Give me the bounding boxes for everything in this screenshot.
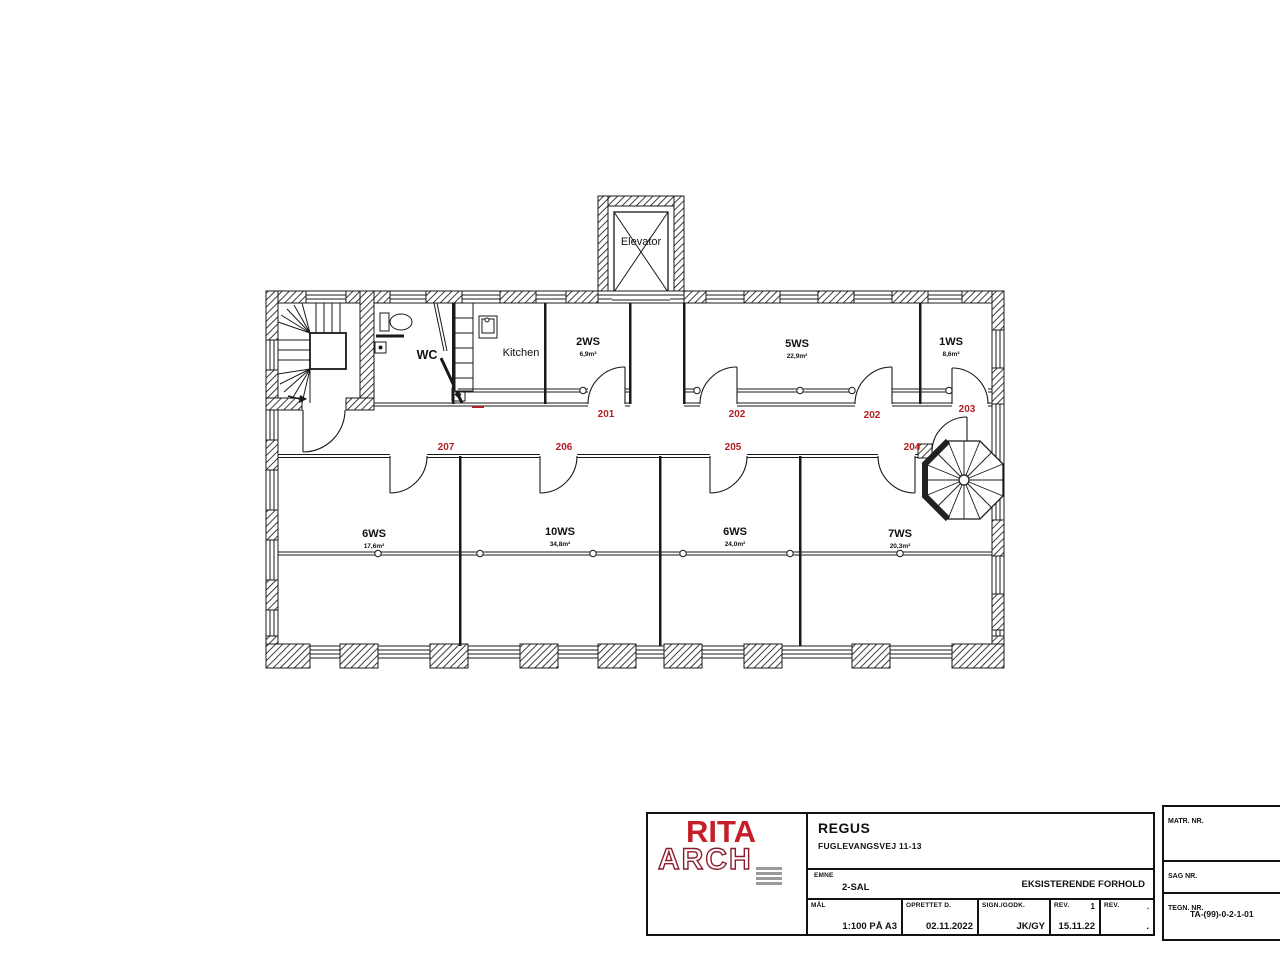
page: { "drawing": { "labels": { "elevator": "… bbox=[0, 0, 1280, 960]
room-area: 34,8m² bbox=[550, 541, 571, 548]
room-name: 1WS bbox=[939, 336, 963, 348]
rev2-label: REV. bbox=[1104, 902, 1119, 909]
sign-value: JK/GY bbox=[1016, 921, 1045, 932]
door-number: 204 bbox=[904, 442, 921, 453]
kitchen-label: Kitchen bbox=[503, 347, 540, 359]
room-name: 6WS bbox=[362, 528, 386, 540]
scale-label: MÅL bbox=[811, 902, 826, 909]
door-number: 207 bbox=[438, 442, 455, 453]
room-area: 6,9m² bbox=[580, 351, 598, 358]
title-block: RITA ARCH REGUS FUGLEVANGSVEJ 11-13 EMNE… bbox=[646, 812, 1155, 936]
logo-cell: RITA ARCH bbox=[648, 814, 808, 934]
room-area: 17,6m² bbox=[364, 543, 385, 550]
rev2-number: . bbox=[1147, 902, 1149, 911]
kitchen-fixtures bbox=[455, 303, 497, 391]
rev2-cell: REV. . . bbox=[1101, 900, 1153, 934]
client-name: REGUS bbox=[818, 820, 1143, 836]
door-swings bbox=[303, 367, 988, 493]
project-row: REGUS FUGLEVANGSVEJ 11-13 bbox=[808, 814, 1153, 870]
sign-cell: SIGN./GODK. JK/GY bbox=[979, 900, 1051, 934]
spiral-staircase bbox=[918, 441, 1003, 519]
logo-tagline-lines bbox=[756, 867, 782, 887]
rev1-date: 15.11.22 bbox=[1059, 921, 1095, 932]
scale-value: 1:100 PÅ A3 bbox=[842, 921, 897, 932]
matr-cell: MATR. NR. bbox=[1164, 807, 1280, 862]
room-area: 8,6m² bbox=[943, 351, 961, 358]
door-number: 205 bbox=[725, 442, 742, 453]
tegn-value: TA-(99)-0-2-1-01 bbox=[1190, 909, 1254, 919]
created-value: 02.11.2022 bbox=[926, 921, 973, 932]
door-number: 203 bbox=[959, 404, 976, 415]
rev2-date: . bbox=[1146, 921, 1149, 932]
room-name: 7WS bbox=[888, 528, 912, 540]
sign-label: SIGN./GODK. bbox=[982, 902, 1025, 909]
door-number: 202 bbox=[729, 409, 746, 420]
door-number-labels: 201 202 202 203 204 205 206 207 bbox=[438, 404, 976, 453]
created-label: OPRETTET D. bbox=[906, 902, 951, 909]
room-name: 5WS bbox=[785, 338, 809, 350]
meta-row: MÅL 1:100 PÅ A3 OPRETTET D. 02.11.2022 S… bbox=[808, 900, 1153, 934]
sag-cell: SAG NR. bbox=[1164, 862, 1280, 894]
rev1-cell: REV. 1 15.11.22 bbox=[1051, 900, 1101, 934]
subject-row: EMNE 2-SAL EKSISTERENDE FORHOLD bbox=[808, 870, 1153, 900]
subject-label: EMNE bbox=[814, 872, 869, 879]
room-area: 22,9m² bbox=[787, 353, 808, 360]
door-number: 201 bbox=[598, 409, 615, 420]
rev1-label: REV. bbox=[1054, 902, 1069, 909]
room-area: 24,0m² bbox=[725, 541, 746, 548]
title-block-info: REGUS FUGLEVANGSVEJ 11-13 EMNE 2-SAL EKS… bbox=[808, 814, 1153, 934]
main-staircase bbox=[266, 291, 374, 410]
elevator-label: Elevator bbox=[621, 236, 662, 248]
project-address: FUGLEVANGSVEJ 11-13 bbox=[818, 841, 1143, 851]
subject-value: 2-SAL bbox=[842, 882, 869, 893]
wc-label: WC bbox=[417, 348, 438, 362]
number-block: MATR. NR. SAG NR. TEGN. NR. TA-(99)-0-2-… bbox=[1162, 805, 1280, 941]
scale-cell: MÅL 1:100 PÅ A3 bbox=[808, 900, 903, 934]
room-name: 6WS bbox=[723, 526, 747, 538]
tegn-cell: TEGN. NR. TA-(99)-0-2-1-01 bbox=[1164, 894, 1280, 939]
door-number: 206 bbox=[556, 442, 573, 453]
rev1-number: 1 bbox=[1091, 902, 1095, 911]
elevator-shaft bbox=[598, 196, 684, 303]
created-cell: OPRETTET D. 02.11.2022 bbox=[903, 900, 979, 934]
door-number: 202 bbox=[864, 410, 881, 421]
matr-label: MATR. NR. bbox=[1168, 818, 1204, 825]
sag-label: SAG NR. bbox=[1168, 873, 1197, 880]
logo-arch: ARCH bbox=[658, 845, 753, 875]
drawing-status: EKSISTERENDE FORHOLD bbox=[1021, 879, 1145, 890]
subject-cell: EMNE 2-SAL bbox=[814, 872, 869, 896]
room-name: 2WS bbox=[576, 336, 600, 348]
room-name: 10WS bbox=[545, 526, 575, 538]
room-area: 20,3m² bbox=[890, 543, 911, 550]
